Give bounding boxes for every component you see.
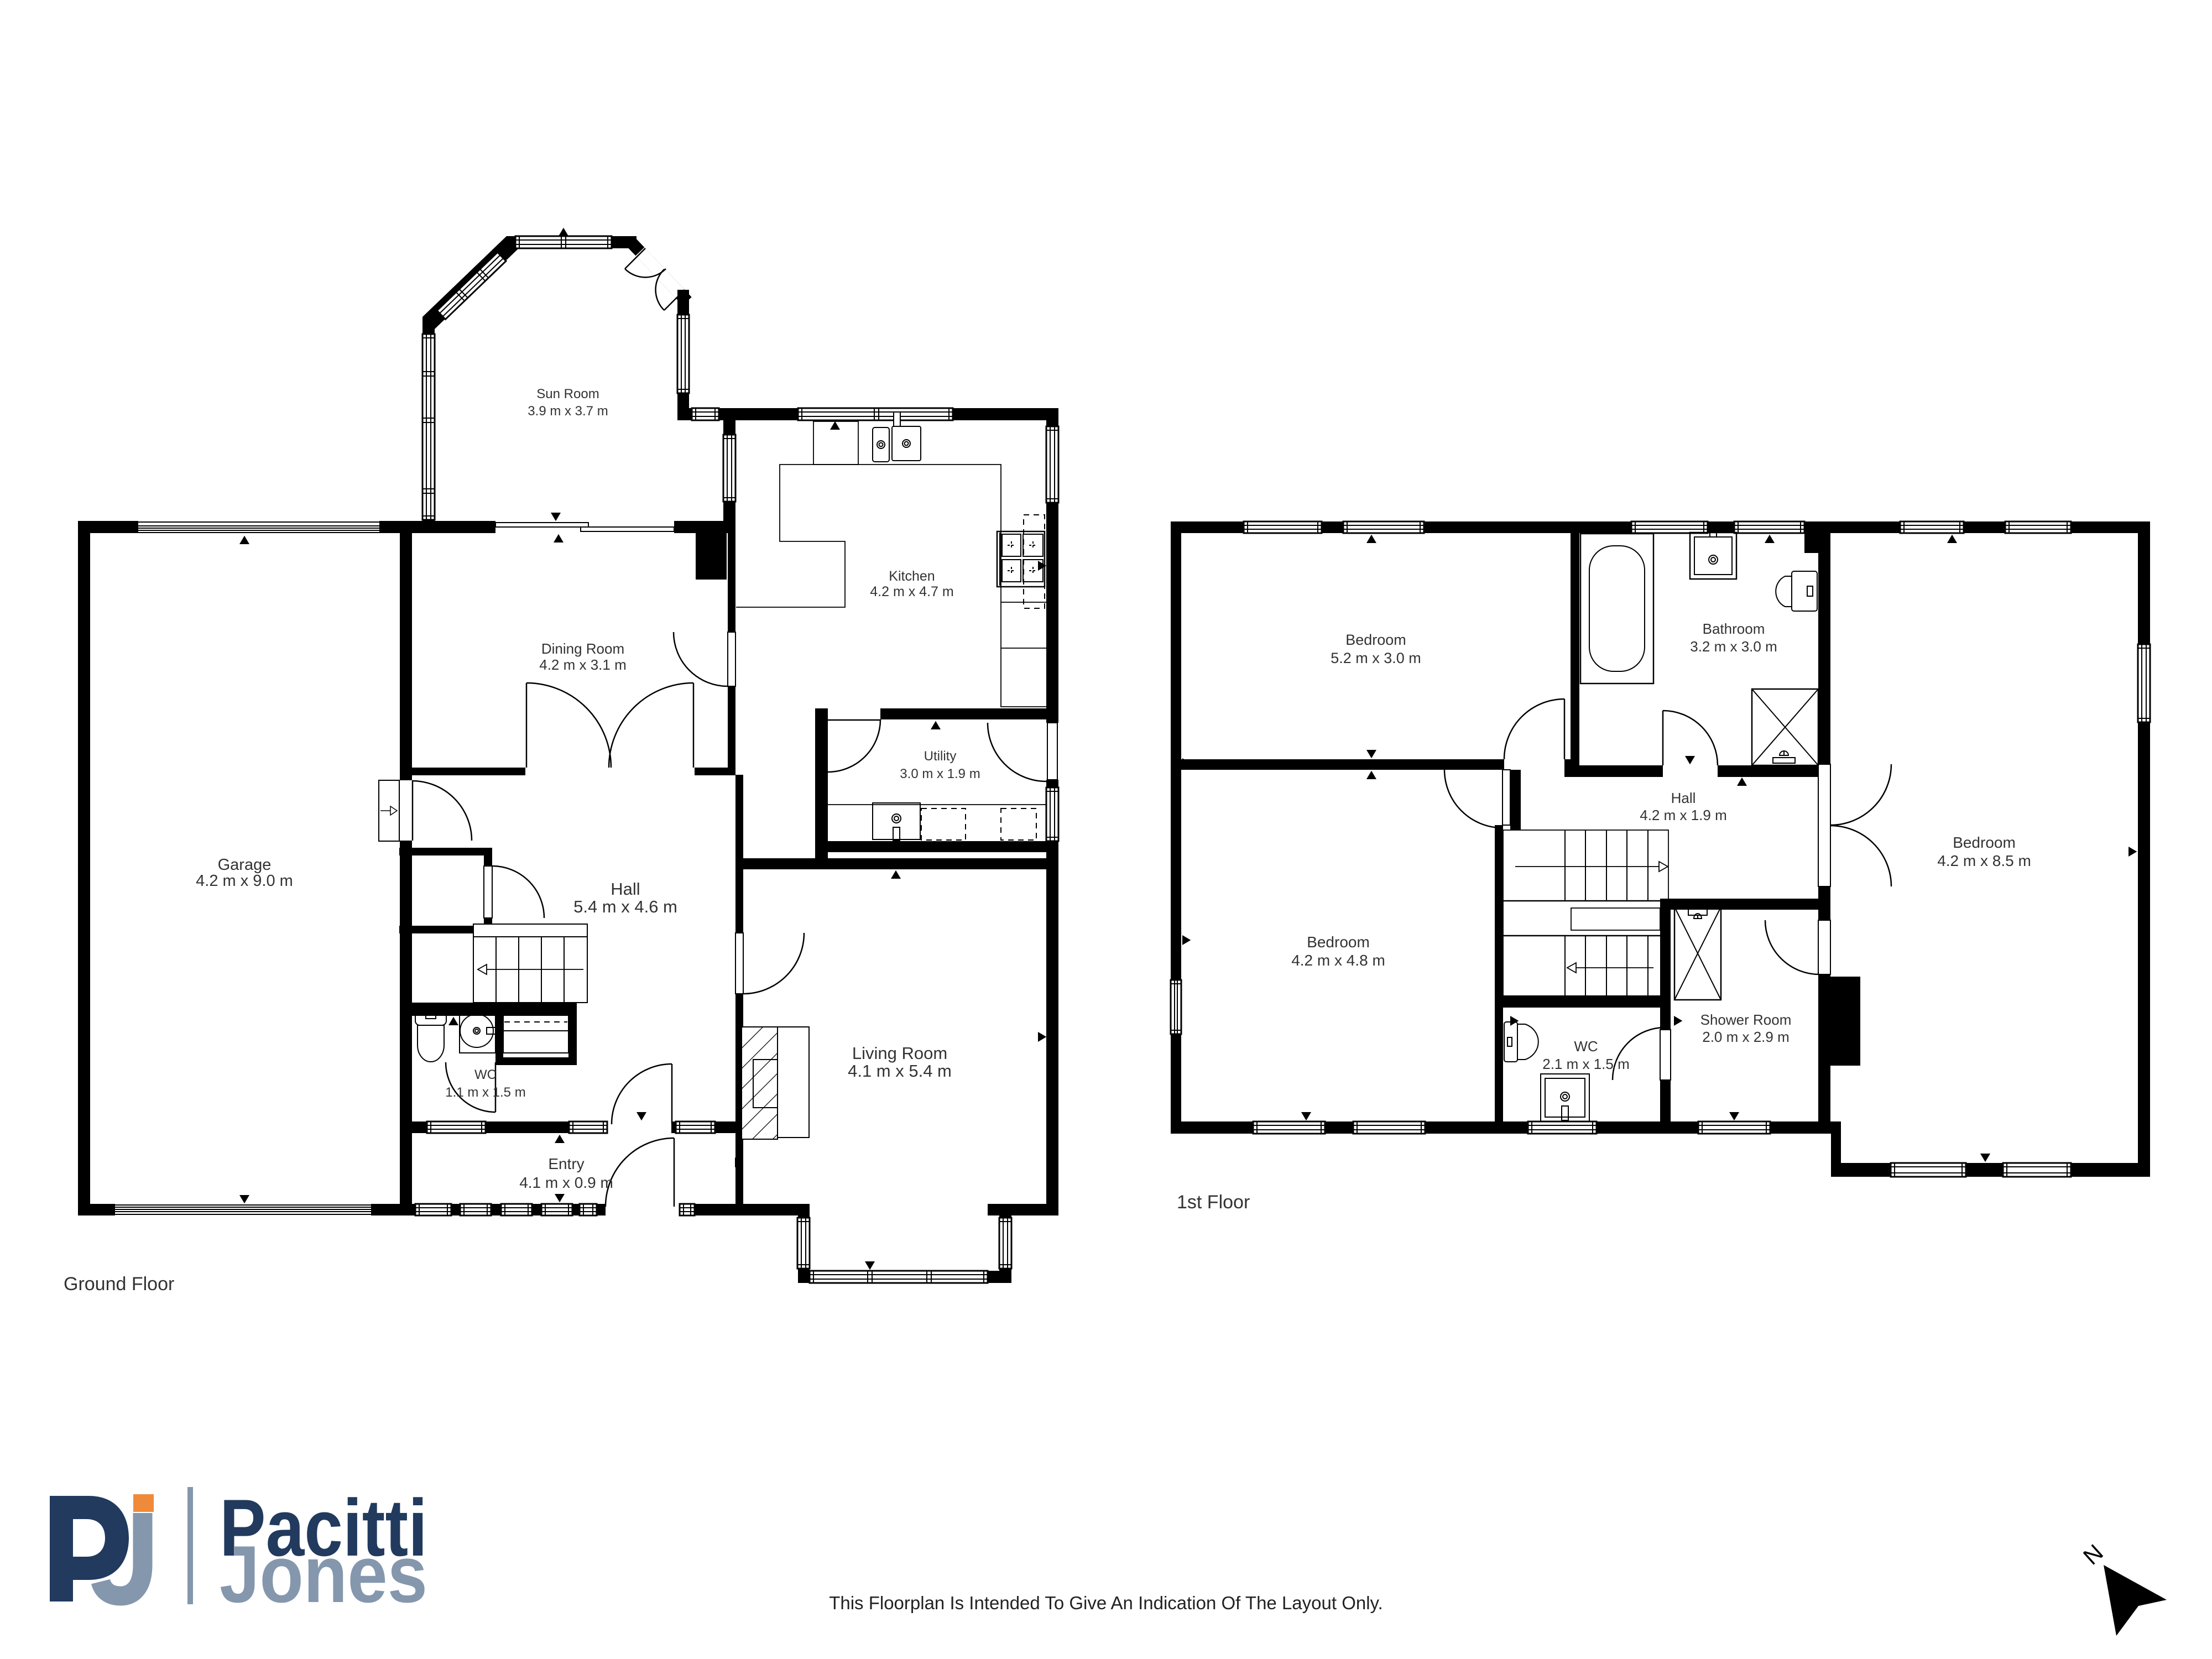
svg-text:1st Floor: 1st Floor xyxy=(1177,1192,1250,1213)
svg-text:Utility: Utility xyxy=(924,749,957,764)
svg-text:Shower Room: Shower Room xyxy=(1700,1011,1792,1028)
svg-text:4.2 m x 3.1 m: 4.2 m x 3.1 m xyxy=(539,656,627,673)
svg-text:Bedroom: Bedroom xyxy=(1953,834,2016,851)
svg-text:5.4 m x 4.6 m: 5.4 m x 4.6 m xyxy=(573,897,677,916)
svg-text:Jones: Jones xyxy=(220,1529,427,1619)
svg-text:WC: WC xyxy=(1574,1038,1598,1055)
svg-text:This Floorplan Is Intended To: This Floorplan Is Intended To Give An In… xyxy=(829,1593,1383,1613)
svg-text:3.2 m x 3.0 m: 3.2 m x 3.0 m xyxy=(1690,638,1777,655)
svg-text:1.1 m x 1.5 m: 1.1 m x 1.5 m xyxy=(445,1085,525,1100)
svg-text:3.9 m x 3.7 m: 3.9 m x 3.7 m xyxy=(528,404,608,419)
svg-text:2.0 m x 2.9 m: 2.0 m x 2.9 m xyxy=(1702,1029,1790,1045)
svg-text:Hall: Hall xyxy=(611,879,640,899)
svg-text:Kitchen: Kitchen xyxy=(889,568,935,584)
svg-text:Entry: Entry xyxy=(548,1155,584,1172)
svg-text:Bedroom: Bedroom xyxy=(1307,933,1370,951)
svg-text:3.0 m x 1.9 m: 3.0 m x 1.9 m xyxy=(900,766,980,781)
svg-text:4.2 m x 4.8 m: 4.2 m x 4.8 m xyxy=(1291,952,1385,969)
svg-text:4.2 m x 4.7 m: 4.2 m x 4.7 m xyxy=(870,584,953,599)
svg-text:Ground Floor: Ground Floor xyxy=(64,1274,174,1295)
svg-text:Sun Room: Sun Room xyxy=(536,387,599,401)
svg-text:Bedroom: Bedroom xyxy=(1345,632,1406,648)
svg-text:4.2 m x 9.0 m: 4.2 m x 9.0 m xyxy=(196,872,293,890)
svg-text:4.1 m x 0.9 m: 4.1 m x 0.9 m xyxy=(519,1174,613,1191)
svg-text:5.2 m x 3.0 m: 5.2 m x 3.0 m xyxy=(1331,650,1421,666)
svg-text:4.2 m x 1.9 m: 4.2 m x 1.9 m xyxy=(1640,807,1727,823)
svg-text:Hall: Hall xyxy=(1671,790,1696,806)
svg-text:2.1 m x 1.5 m: 2.1 m x 1.5 m xyxy=(1542,1056,1630,1072)
svg-text:WC: WC xyxy=(474,1067,497,1082)
svg-text:Dining Room: Dining Room xyxy=(541,640,624,657)
svg-text:Bathroom: Bathroom xyxy=(1703,620,1765,637)
svg-text:Living Room: Living Room xyxy=(852,1044,947,1063)
svg-text:4.1 m x 5.4 m: 4.1 m x 5.4 m xyxy=(848,1061,952,1081)
svg-text:4.2 m x 8.5 m: 4.2 m x 8.5 m xyxy=(1937,852,2031,869)
svg-text:Garage: Garage xyxy=(218,856,272,874)
